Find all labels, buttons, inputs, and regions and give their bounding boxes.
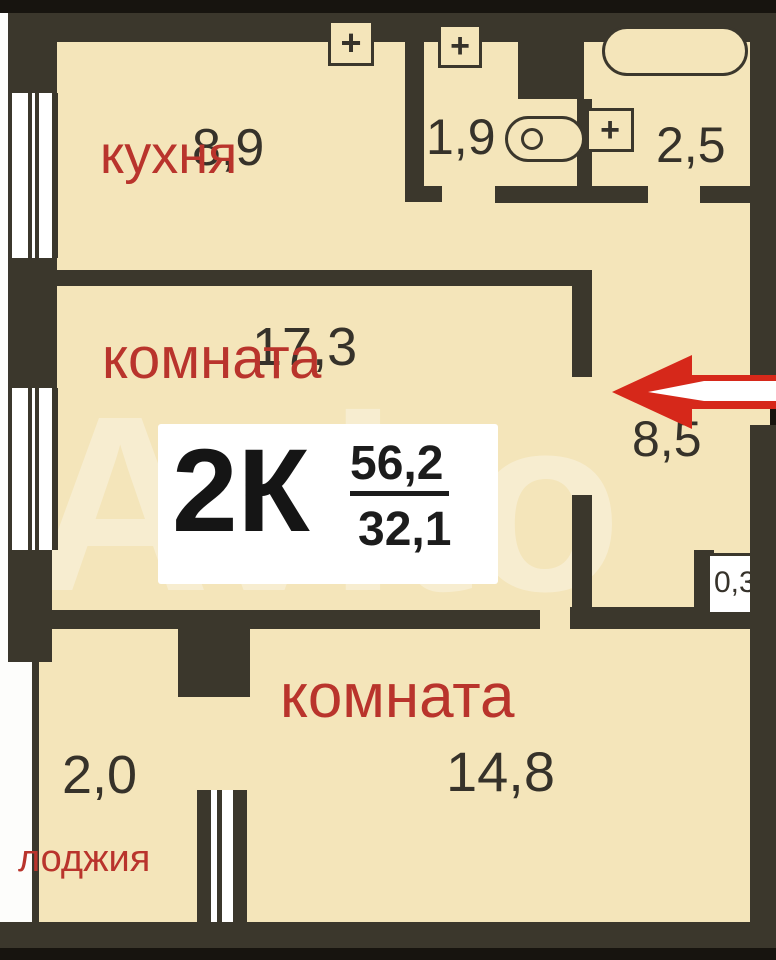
total-area-label: 56,2 xyxy=(350,436,449,496)
loggia-area-label: 2,0 xyxy=(62,748,137,802)
wall-left-block-1 xyxy=(8,13,57,93)
wall-left-block-2 xyxy=(8,258,57,388)
wall-room1-right-lower xyxy=(572,495,592,612)
wall-left-block-3 xyxy=(8,550,52,662)
kitchen-name-label: кухня xyxy=(100,128,237,182)
wall-wc-bottom xyxy=(495,186,648,203)
apartment-type-label: 2К xyxy=(172,432,310,550)
bathtub-icon xyxy=(602,26,748,76)
living-area-label: 32,1 xyxy=(358,506,451,554)
vent-plus-icon-bath: + xyxy=(586,108,634,152)
closet-area-label: 0,3 xyxy=(714,566,750,600)
wall-vent-block xyxy=(518,13,584,99)
room2-name-label: комната xyxy=(280,666,514,728)
info-box: 2К 56,2 32,1 xyxy=(158,424,498,584)
wall-right-lower xyxy=(750,425,776,947)
outside-margin-loggia xyxy=(0,662,32,922)
wall-right-upper xyxy=(750,13,776,377)
room2-area-label: 14,8 xyxy=(446,744,555,800)
vent-plus-icon-wc: + xyxy=(438,24,482,68)
wall-loggia-block xyxy=(178,625,250,697)
wall-bottom xyxy=(0,922,776,948)
room1-name-label: комната xyxy=(102,330,321,388)
vent-plus-icon-kitchen: + xyxy=(328,20,374,66)
floor-plan: Avito 0,3 + + + 2К 56,2 32,1 xyxy=(0,0,776,960)
wc-area-label: 1,9 xyxy=(426,112,496,162)
wall-room1-top xyxy=(52,270,592,286)
entrance-arrow-icon xyxy=(612,352,776,432)
window-kitchen xyxy=(8,93,58,258)
window-room1 xyxy=(8,388,58,550)
window-loggia xyxy=(197,790,247,922)
wall-kitchen-right-cap xyxy=(405,186,442,202)
wall-kitchen-right xyxy=(405,13,424,188)
closet-niche: 0,3 xyxy=(710,553,750,612)
wall-loggia-left xyxy=(32,662,39,922)
loggia-name-label: лоджия xyxy=(18,840,150,878)
wall-room2-top xyxy=(32,610,540,629)
toilet-icon xyxy=(505,116,585,162)
wall-room1-right-upper xyxy=(572,286,592,377)
bathroom-area-label: 2,5 xyxy=(656,120,726,170)
